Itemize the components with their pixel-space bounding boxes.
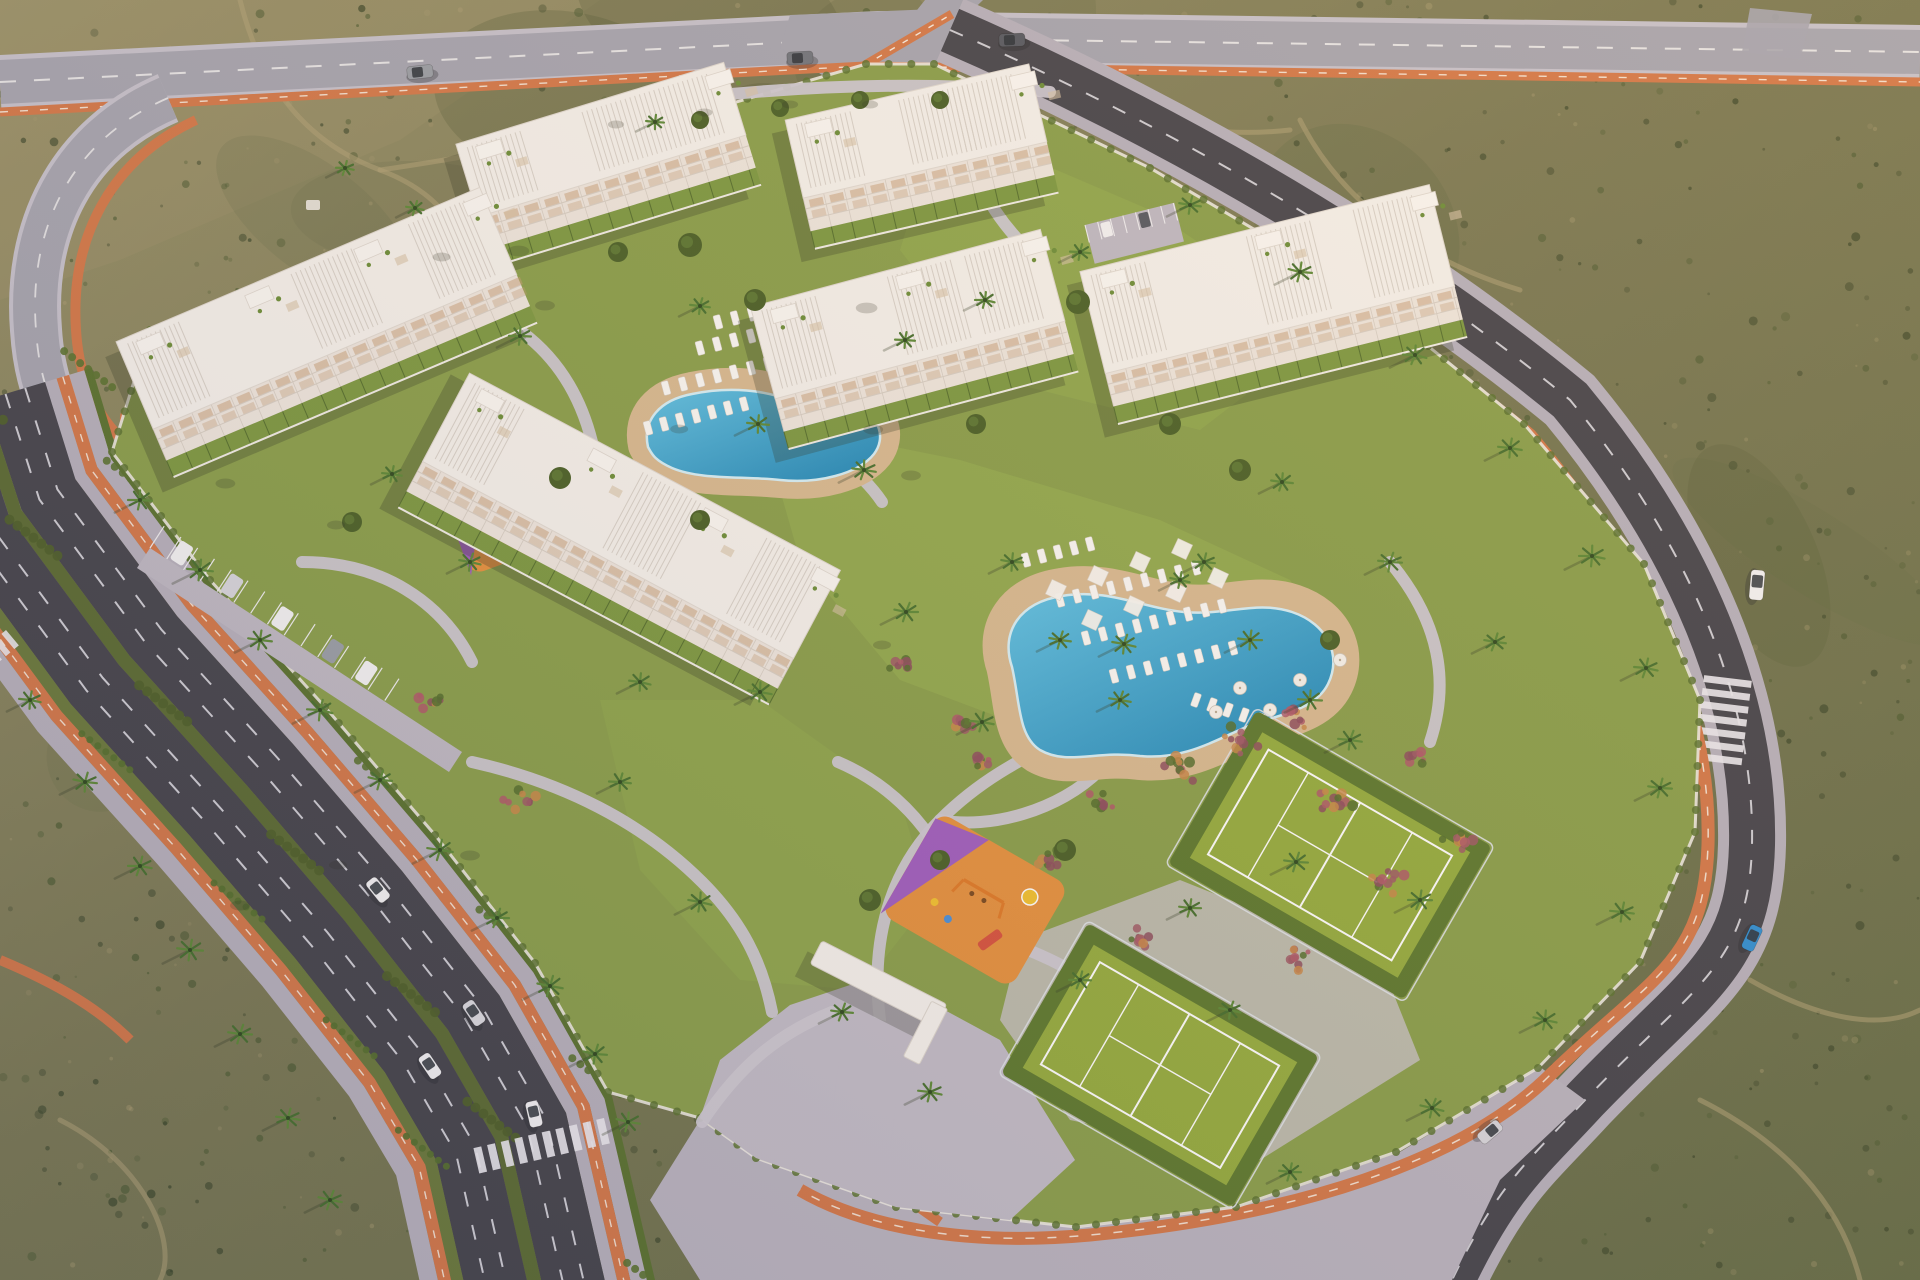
render-canvas	[0, 0, 1920, 1280]
light-grade-overlay	[0, 0, 1920, 1280]
aerial-render-scene: Aerial 3D render of a gated residential …	[0, 0, 1920, 1280]
